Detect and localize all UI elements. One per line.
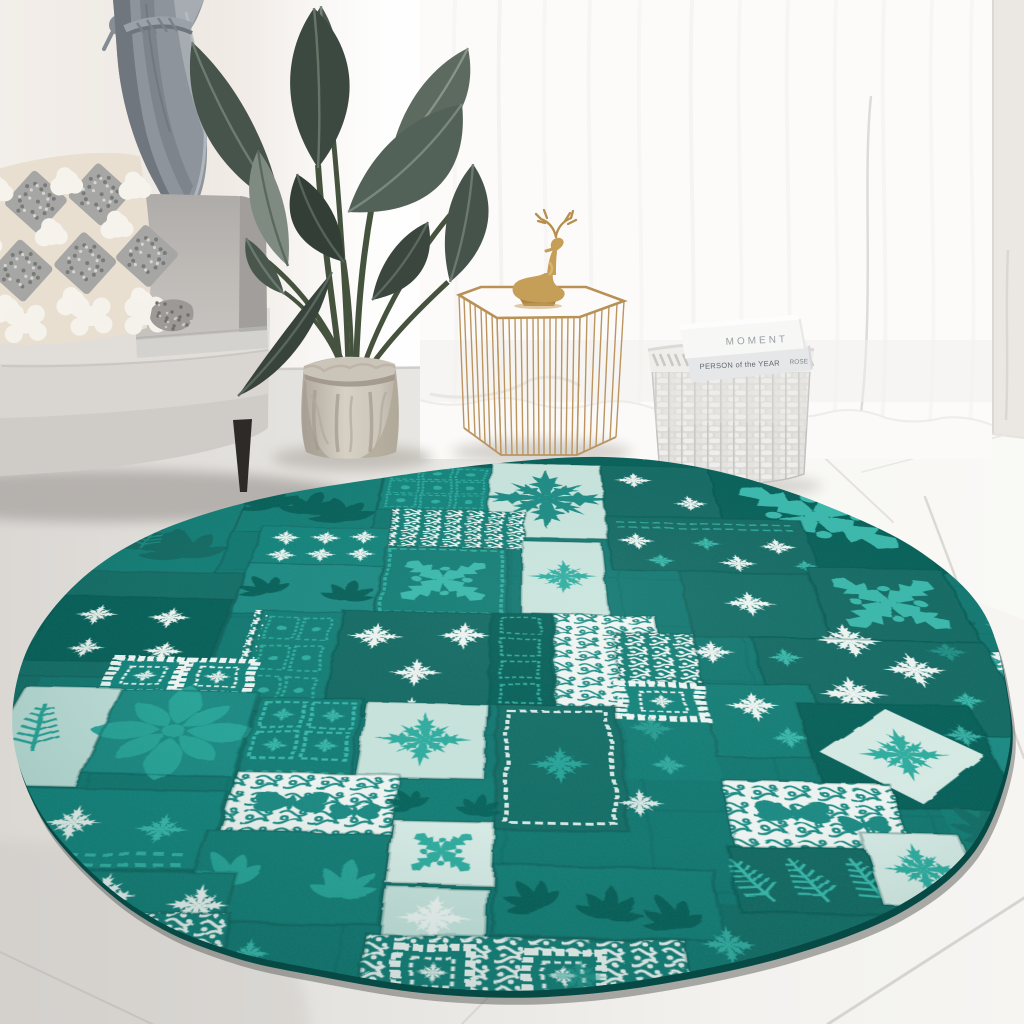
- svg-text:ROSE: ROSE: [789, 358, 808, 366]
